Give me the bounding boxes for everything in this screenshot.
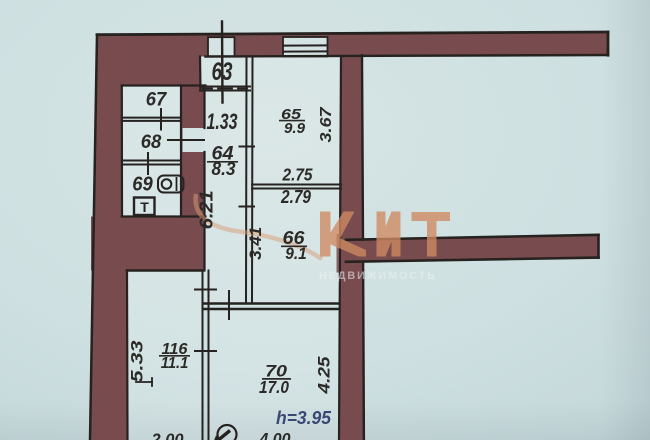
svg-text:63: 63 [212, 58, 233, 86]
svg-text:2.00: 2.00 [151, 430, 184, 440]
svg-text:Т: Т [140, 199, 149, 215]
svg-text:11.1: 11.1 [161, 355, 189, 372]
svg-text:68: 68 [141, 132, 162, 153]
svg-text:1.33: 1.33 [207, 109, 238, 134]
svg-text:8.3: 8.3 [212, 159, 236, 179]
svg-text:9.1: 9.1 [285, 244, 307, 263]
svg-text:6.21: 6.21 [197, 190, 217, 229]
svg-text:3.67: 3.67 [318, 106, 335, 142]
svg-text:17.0: 17.0 [259, 377, 289, 397]
svg-text:h=3.95: h=3.95 [276, 408, 332, 428]
svg-text:69: 69 [132, 174, 153, 196]
svg-text:67: 67 [146, 90, 168, 111]
svg-text:5.33: 5.33 [128, 340, 147, 383]
svg-text:НЕДВИЖИМОСТЬ: НЕДВИЖИМОСТЬ [319, 270, 437, 282]
svg-text:3.41: 3.41 [246, 227, 265, 260]
svg-text:4.00: 4.00 [259, 430, 291, 440]
svg-text:9.9: 9.9 [284, 120, 306, 137]
svg-text:2.75: 2.75 [282, 165, 313, 185]
svg-text:4.25: 4.25 [315, 356, 334, 395]
svg-text:2.79: 2.79 [280, 186, 311, 207]
